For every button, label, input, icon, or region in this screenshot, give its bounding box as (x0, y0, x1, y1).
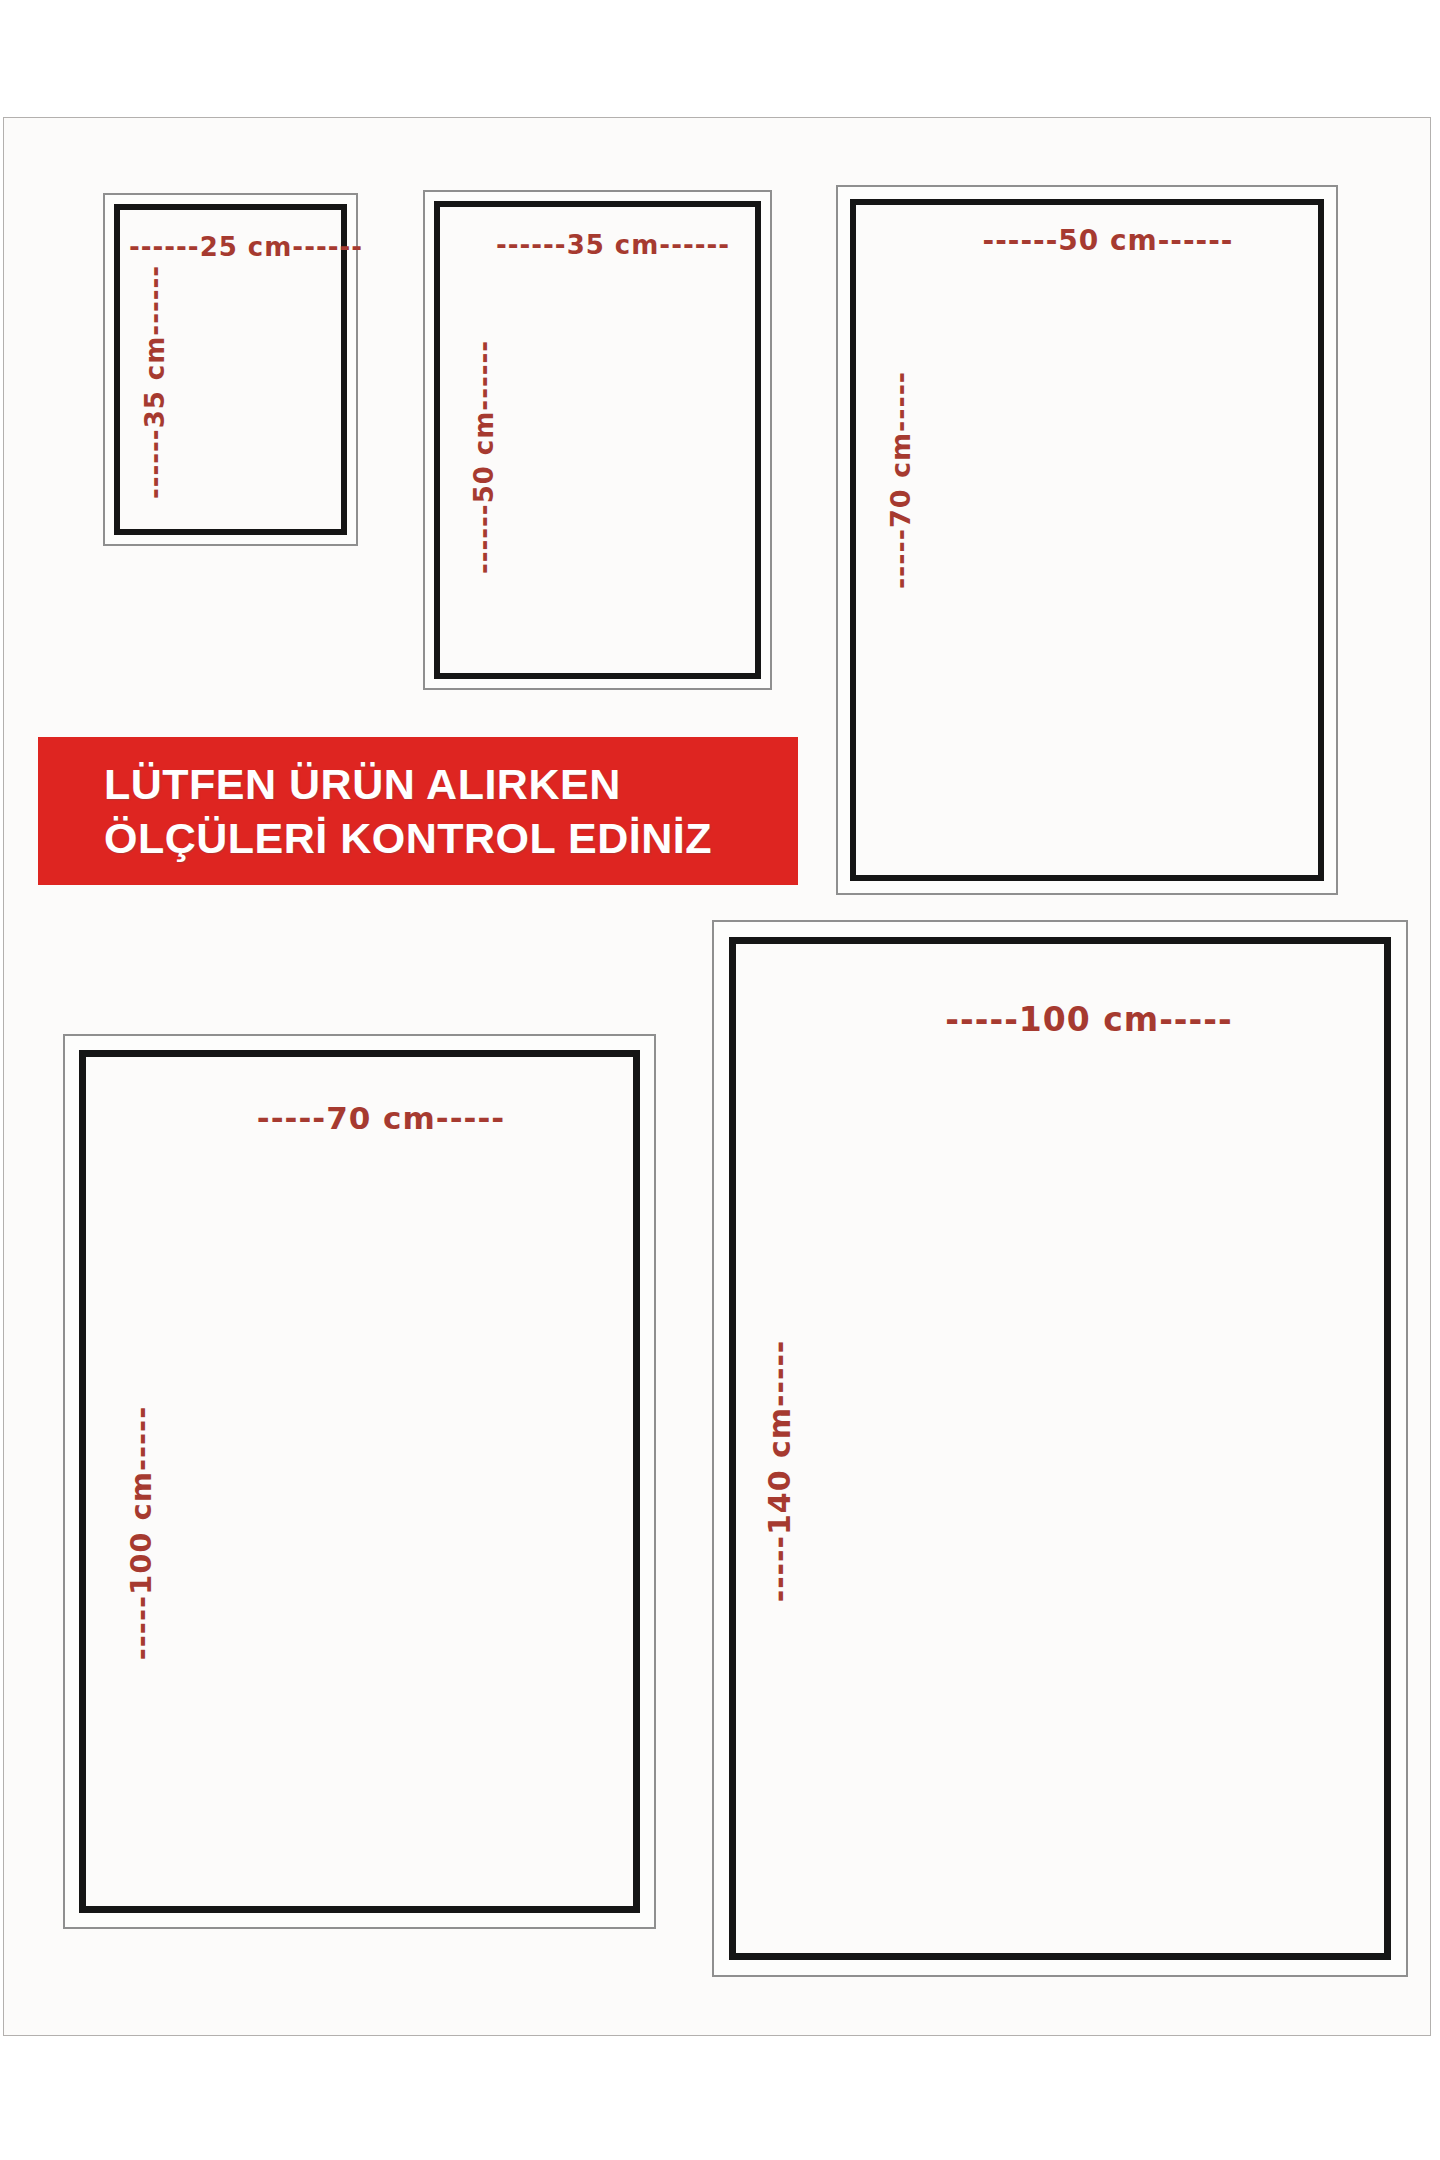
warning-line-2: ÖLÇÜLERİ KONTROL EDİNİZ (104, 811, 798, 865)
height-dimension-label-35cm: ------35 cm------ (140, 265, 170, 499)
width-dimension-label-100cm: -----100 cm----- (945, 1000, 1232, 1039)
size-box-70x100: -----70 cm----- -----100 cm----- (63, 1034, 656, 1929)
size-box-50x70-inner-frame: ------50 cm------ -----70 cm----- (850, 199, 1324, 881)
size-box-35x50: ------35 cm------ ------50 cm------ (423, 190, 772, 690)
size-box-35x50-inner-frame: ------35 cm------ ------50 cm------ (434, 201, 761, 679)
height-dimension-label-50cm: ------50 cm------ (469, 340, 499, 574)
size-box-25x35-inner-frame: ------25 cm------ ------35 cm------ (114, 204, 347, 535)
height-dimension-label-100cm: -----100 cm----- (124, 1406, 158, 1660)
width-dimension-label-25cm: ------25 cm------ (129, 232, 363, 262)
size-box-100x140-inner-frame: -----100 cm----- -----140 cm----- (729, 937, 1391, 1960)
size-box-25x35: ------25 cm------ ------35 cm------ (103, 193, 358, 546)
size-box-50x70: ------50 cm------ -----70 cm----- (836, 185, 1338, 895)
size-guide-graphic: ------25 cm------ ------35 cm------ ----… (0, 0, 1440, 2160)
size-box-100x140: -----100 cm----- -----140 cm----- (712, 920, 1408, 1977)
width-dimension-label-35cm: ------35 cm------ (496, 230, 730, 260)
warning-line-1: LÜTFEN ÜRÜN ALIRKEN (104, 757, 798, 811)
size-box-70x100-inner-frame: -----70 cm----- -----100 cm----- (79, 1050, 640, 1913)
width-dimension-label-70cm: -----70 cm----- (257, 1100, 505, 1136)
size-check-warning-banner: LÜTFEN ÜRÜN ALIRKEN ÖLÇÜLERİ KONTROL EDİ… (38, 737, 798, 885)
height-dimension-label-70cm: -----70 cm----- (885, 371, 916, 589)
height-dimension-label-140cm: -----140 cm----- (762, 1340, 797, 1603)
width-dimension-label-50cm: ------50 cm------ (983, 224, 1234, 257)
